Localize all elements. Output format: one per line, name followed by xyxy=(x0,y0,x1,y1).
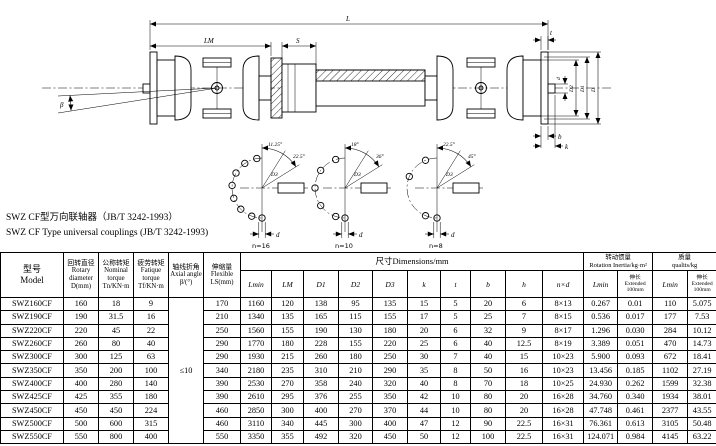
detail2-pitch-angle: 36° xyxy=(375,153,385,160)
col-header-model: 型号 Model xyxy=(1,253,64,298)
value-cell: 295 xyxy=(272,391,304,404)
table-row: SWZ220CF22045222501560155190130180206329… xyxy=(1,324,716,337)
col-header-mass-extended: 伸长 Extended 100mm xyxy=(688,271,716,298)
value-cell: 672 xyxy=(653,351,688,364)
value-cell: 10×23 xyxy=(543,364,584,377)
dim-slide-length: S xyxy=(282,37,316,68)
detail1-circle-label: D3 xyxy=(270,172,278,178)
value-cell: 460 xyxy=(204,417,241,430)
value-cell: 210 xyxy=(339,364,373,377)
detail1-pitch-angle: 22.5° xyxy=(293,153,306,160)
value-cell: 8×15 xyxy=(543,311,584,324)
value-cell: 1934 xyxy=(653,391,688,404)
value-cell: 370 xyxy=(373,404,408,417)
col-header-b: b xyxy=(471,271,506,298)
value-cell: 7 xyxy=(441,351,471,364)
value-cell: 350 xyxy=(373,391,408,404)
value-cell: 42 xyxy=(408,391,441,404)
value-cell: 160 xyxy=(64,298,99,311)
value-cell: 3350 xyxy=(241,430,272,443)
value-cell: 0.093 xyxy=(618,351,653,364)
value-cell: 20 xyxy=(471,298,506,311)
detail2-half-angle: 18° xyxy=(351,141,360,148)
value-cell: 358 xyxy=(304,377,339,390)
value-cell: 10×25 xyxy=(543,377,584,390)
value-cell: 6 xyxy=(441,337,471,350)
value-cell: 2180 xyxy=(241,364,272,377)
value-cell: 0.030 xyxy=(618,324,653,337)
value-cell: 800 xyxy=(99,430,134,443)
value-cell: 400 xyxy=(134,430,169,443)
value-cell: 450 xyxy=(64,404,99,417)
table-row: SWZ160CF160189≤1017011601201389513515520… xyxy=(1,298,716,311)
value-cell: 250 xyxy=(204,324,241,337)
value-cell: 0.185 xyxy=(618,364,653,377)
value-cell: 290 xyxy=(373,364,408,377)
value-cell: 80 xyxy=(99,337,134,350)
value-cell: 12 xyxy=(441,417,471,430)
value-cell: 5.900 xyxy=(584,351,618,364)
value-cell: 250 xyxy=(373,351,408,364)
value-cell: 25 xyxy=(471,311,506,324)
value-cell: 138 xyxy=(304,298,339,311)
value-cell: 155 xyxy=(272,324,304,337)
dim-label-LM: LM xyxy=(203,37,215,45)
value-cell: 8 xyxy=(441,364,471,377)
dim-flange-thickness: t xyxy=(533,29,556,50)
table-row: SWZ425CF42535518039026102953762553504210… xyxy=(1,391,716,404)
value-cell: 2530 xyxy=(241,377,272,390)
value-cell: 40 xyxy=(471,337,506,350)
value-cell: 1102 xyxy=(653,364,688,377)
bolt-pattern-detail-n16: 11.25° 22.5° D3 d n=16 xyxy=(229,141,308,250)
value-cell: 135 xyxy=(272,311,304,324)
detail3-pitch-angle: 45° xyxy=(468,153,477,160)
group-header-inertia: 转动惯量 Rotation Inertia/kg·m² xyxy=(584,253,653,271)
value-cell: 45 xyxy=(99,324,134,337)
value-cell: 40 xyxy=(134,337,169,350)
value-cell: 460 xyxy=(204,404,241,417)
value-cell: 25 xyxy=(408,337,441,350)
value-cell: 50 xyxy=(408,430,441,443)
model-cell: SWZ260CF xyxy=(1,337,64,350)
value-cell: 34.760 xyxy=(584,391,618,404)
value-cell: 120 xyxy=(272,298,304,311)
value-cell: 8×13 xyxy=(543,298,584,311)
value-cell: 125 xyxy=(99,351,134,364)
table-row: SWZ500CF50060031546031103404453004004712… xyxy=(1,417,716,430)
value-cell: 190 xyxy=(64,311,99,324)
value-cell: 9 xyxy=(506,324,543,337)
value-cell: 16×28 xyxy=(543,404,584,417)
value-cell: 270 xyxy=(272,377,304,390)
value-cell: 130 xyxy=(339,324,373,337)
value-cell: 12 xyxy=(441,430,471,443)
value-cell: 315 xyxy=(134,417,169,430)
value-cell: 290 xyxy=(204,351,241,364)
value-cell: 6 xyxy=(441,324,471,337)
value-cell: 15 xyxy=(408,298,441,311)
value-cell: 350 xyxy=(64,364,99,377)
value-cell: 400 xyxy=(64,377,99,390)
dim-label-t: t xyxy=(550,29,553,37)
value-cell: 235 xyxy=(272,364,304,377)
dim-label-k: k xyxy=(565,143,569,151)
table-row: SWZ400CF40028014039025302703582403204087… xyxy=(1,377,716,390)
value-cell: 0.267 xyxy=(584,298,618,311)
axial-angle-value: ≤10 xyxy=(169,298,204,444)
col-header-fatique-torque: 疲劳转矩 Fatique torque Tf/KN·m xyxy=(134,253,169,298)
detail3-half-angle: 22.5° xyxy=(443,141,456,148)
value-cell: 165 xyxy=(304,311,339,324)
model-cell: SWZ350CF xyxy=(1,364,64,377)
value-cell: 425 xyxy=(64,391,99,404)
value-cell: 4145 xyxy=(653,430,688,443)
value-cell: 340 xyxy=(204,364,241,377)
value-cell: 300 xyxy=(339,417,373,430)
value-cell: 260 xyxy=(64,337,99,350)
value-cell: 210 xyxy=(204,311,241,324)
value-cell: 80 xyxy=(471,391,506,404)
value-cell: 18.41 xyxy=(688,351,716,364)
bolt-pattern-detail-n8: 22.5° 45° D3 d n=8 xyxy=(406,141,483,250)
value-cell: 220 xyxy=(373,337,408,350)
value-cell: 95 xyxy=(339,298,373,311)
bolt-pattern-detail-n10: 18° 36° D3 d n=10 xyxy=(312,141,391,250)
model-cell: SWZ190CF xyxy=(1,311,64,324)
value-cell: 180 xyxy=(134,391,169,404)
page: L LM S t d xyxy=(0,0,716,446)
value-cell: 470 xyxy=(653,337,688,350)
value-cell: 32.38 xyxy=(688,377,716,390)
value-cell: 3110 xyxy=(241,417,272,430)
dim-label-D2: D2 xyxy=(569,85,575,93)
value-cell: 2377 xyxy=(653,404,688,417)
dim-label-b: b xyxy=(558,133,562,141)
model-cell: SWZ400CF xyxy=(1,377,64,390)
value-cell: 0.051 xyxy=(618,337,653,350)
value-cell: 22.5 xyxy=(506,417,543,430)
value-cell: 0.461 xyxy=(618,404,653,417)
value-cell: 70 xyxy=(471,377,506,390)
value-cell: 40 xyxy=(408,377,441,390)
col-header-axial-angle: 轴线折角 Axial angle β/(°) xyxy=(169,253,204,298)
value-cell: 22.5 xyxy=(506,430,543,443)
value-cell: 1340 xyxy=(241,311,272,324)
value-cell: 80 xyxy=(471,404,506,417)
value-cell: 284 xyxy=(653,324,688,337)
value-cell: 300 xyxy=(272,404,304,417)
value-cell: 320 xyxy=(373,377,408,390)
value-cell: 3.389 xyxy=(584,337,618,350)
model-cell: SWZ425CF xyxy=(1,391,64,404)
value-cell: 16×28 xyxy=(543,391,584,404)
value-cell: 10.12 xyxy=(688,324,716,337)
value-cell: 1160 xyxy=(241,298,272,311)
detail2-circle-label: D3 xyxy=(353,172,361,178)
detail3-hole-label: d xyxy=(451,231,455,239)
value-cell: 1599 xyxy=(653,377,688,390)
table-row: SWZ550CF55080040055033503554923204505012… xyxy=(1,430,716,443)
value-cell: 550 xyxy=(64,430,99,443)
value-cell: 8×19 xyxy=(543,337,584,350)
value-cell: 16×31 xyxy=(543,417,584,430)
value-cell: 0.262 xyxy=(618,377,653,390)
table-row: SWZ450CF45045022446028503004002703704410… xyxy=(1,404,716,417)
value-cell: 155 xyxy=(339,337,373,350)
value-cell: 390 xyxy=(204,391,241,404)
value-cell: 20 xyxy=(408,324,441,337)
value-cell: 5 xyxy=(441,298,471,311)
value-cell: 260 xyxy=(304,351,339,364)
value-cell: 600 xyxy=(99,417,134,430)
value-cell: 290 xyxy=(204,337,241,350)
value-cell: 90 xyxy=(471,417,506,430)
model-cell: SWZ160CF xyxy=(1,298,64,311)
value-cell: 224 xyxy=(134,404,169,417)
value-cell: 445 xyxy=(304,417,339,430)
value-cell: 220 xyxy=(64,324,99,337)
value-cell: 2610 xyxy=(241,391,272,404)
value-cell: 0.613 xyxy=(618,417,653,430)
value-cell: 270 xyxy=(339,404,373,417)
value-cell: 38.01 xyxy=(688,391,716,404)
value-cell: 16×31 xyxy=(543,430,584,443)
detail1-half-angle: 11.25° xyxy=(268,141,283,148)
value-cell: 31.5 xyxy=(99,311,134,324)
detail2-hole-label: d xyxy=(359,231,363,239)
value-cell: 1930 xyxy=(241,351,272,364)
col-header-d2: D2 xyxy=(339,271,373,298)
value-cell: 400 xyxy=(304,404,339,417)
model-cell: SWZ500CF xyxy=(1,417,64,430)
value-cell: 320 xyxy=(339,430,373,443)
table-row: SWZ350CF35020010034021802353102102903585… xyxy=(1,364,716,377)
value-cell: 12.5 xyxy=(506,337,543,350)
detail1-count-label: n=16 xyxy=(252,242,270,250)
dim-label-L: L xyxy=(345,15,350,23)
value-cell: 0.01 xyxy=(618,298,653,311)
value-cell: 215 xyxy=(272,351,304,364)
value-cell: 376 xyxy=(304,391,339,404)
value-cell: 355 xyxy=(99,391,134,404)
col-header-h: h xyxy=(506,271,543,298)
value-cell: 14.73 xyxy=(688,337,716,350)
value-cell: 177 xyxy=(653,311,688,324)
value-cell: 135 xyxy=(373,298,408,311)
value-cell: 1560 xyxy=(241,324,272,337)
value-cell: 32 xyxy=(471,324,506,337)
dim-label-D: D xyxy=(591,88,597,93)
table-row: SWZ190CF19031.51621013401351651151551752… xyxy=(1,311,716,324)
model-cell: SWZ550CF xyxy=(1,430,64,443)
value-cell: 0.536 xyxy=(584,311,618,324)
value-cell: 5 xyxy=(441,311,471,324)
value-cell: 63.22 xyxy=(688,430,716,443)
col-header-d3: D3 xyxy=(373,271,408,298)
group-header-mass: 质量 qualits/kg xyxy=(653,253,716,271)
dim-joint-length: LM xyxy=(150,37,271,56)
value-cell: 124.071 xyxy=(584,430,618,443)
dim-axial-angle: β xyxy=(58,88,217,113)
value-cell: 5.075 xyxy=(688,298,716,311)
value-cell: 18 xyxy=(506,377,543,390)
value-cell: 492 xyxy=(304,430,339,443)
detail3-count-label: n=8 xyxy=(429,242,443,250)
value-cell: 155 xyxy=(373,311,408,324)
value-cell: 400 xyxy=(373,417,408,430)
detail2-count-label: n=10 xyxy=(335,242,353,250)
dim-label-beta: β xyxy=(59,101,64,109)
value-cell: 180 xyxy=(339,351,373,364)
value-cell: 20 xyxy=(506,404,543,417)
value-cell: 340 xyxy=(272,417,304,430)
value-cell: 27.19 xyxy=(688,364,716,377)
value-cell: 0.017 xyxy=(618,311,653,324)
value-cell: 24.930 xyxy=(584,377,618,390)
col-header-d1: D1 xyxy=(304,271,339,298)
header-row-groups: 型号 Model 回转直径 Rotary diameter D(mm) 公称转矩… xyxy=(1,253,716,271)
value-cell: 17 xyxy=(408,311,441,324)
title-line-en: SWZ CF Type universal couplings (JB/T 32… xyxy=(6,226,208,241)
value-cell: 15 xyxy=(506,351,543,364)
col-header-nominal-torque: 公称转矩 Nominal torque Tn/KN·m xyxy=(99,253,134,298)
value-cell: 50.48 xyxy=(688,417,716,430)
value-cell: 30 xyxy=(408,351,441,364)
value-cell: 100 xyxy=(134,364,169,377)
value-cell: 35 xyxy=(408,364,441,377)
value-cell: 18 xyxy=(99,298,134,311)
specs-table: 型号 Model 回转直径 Rotary diameter D(mm) 公称转矩… xyxy=(0,252,716,444)
value-cell: 180 xyxy=(373,324,408,337)
dim-label-S: S xyxy=(296,37,300,45)
value-cell: 310 xyxy=(304,364,339,377)
value-cell: 450 xyxy=(373,430,408,443)
value-cell: 63 xyxy=(134,351,169,364)
value-cell: 115 xyxy=(339,311,373,324)
value-cell: 355 xyxy=(272,430,304,443)
value-cell: 2850 xyxy=(241,404,272,417)
group-header-dimensions: 尺寸Dimensions/mm xyxy=(241,253,584,271)
value-cell: 8×17 xyxy=(543,324,584,337)
value-cell: 43.55 xyxy=(688,404,716,417)
value-cell: 40 xyxy=(471,351,506,364)
dim-label-d: d xyxy=(556,77,562,80)
value-cell: 47.748 xyxy=(584,404,618,417)
col-header-lm: LM xyxy=(272,271,304,298)
value-cell: 170 xyxy=(204,298,241,311)
value-cell: 3105 xyxy=(653,417,688,430)
col-header-rotary-diameter: 回转直径 Rotary diameter D(mm) xyxy=(64,253,99,298)
value-cell: 550 xyxy=(204,430,241,443)
col-header-inertia-lmin: Lmin xyxy=(584,271,618,298)
col-header-flexible: 伸缩量 Flexible LS(mm) xyxy=(204,253,241,298)
value-cell: 13.456 xyxy=(584,364,618,377)
col-header-t: t xyxy=(441,271,471,298)
value-cell: 16 xyxy=(506,364,543,377)
value-cell: 22 xyxy=(134,324,169,337)
value-cell: 180 xyxy=(272,337,304,350)
value-cell: 9 xyxy=(134,298,169,311)
title-block: SWZ CF型万向联轴器（JB/T 3242-1993） SWZ CF Type… xyxy=(6,211,208,241)
value-cell: 6 xyxy=(506,298,543,311)
value-cell: 76.361 xyxy=(584,417,618,430)
value-cell: 1.296 xyxy=(584,324,618,337)
value-cell: 20 xyxy=(506,391,543,404)
value-cell: 16 xyxy=(134,311,169,324)
table-row: SWZ260CF26080402901770180228155220256401… xyxy=(1,337,716,350)
col-header-lmin: Lmin xyxy=(241,271,272,298)
table-row: SWZ300CF30012563290193021526018025030740… xyxy=(1,351,716,364)
value-cell: 7.53 xyxy=(688,311,716,324)
value-cell: 240 xyxy=(339,377,373,390)
value-cell: 10×23 xyxy=(543,351,584,364)
value-cell: 110 xyxy=(653,298,688,311)
dim-label-D1: D1 xyxy=(580,85,586,93)
value-cell: 450 xyxy=(99,404,134,417)
col-header-k: k xyxy=(408,271,441,298)
value-cell: 100 xyxy=(471,430,506,443)
value-cell: 0.340 xyxy=(618,391,653,404)
col-header-nxd: n×d xyxy=(543,271,584,298)
value-cell: 7 xyxy=(506,311,543,324)
value-cell: 280 xyxy=(99,377,134,390)
value-cell: 10 xyxy=(441,404,471,417)
value-cell: 8 xyxy=(441,377,471,390)
value-cell: 228 xyxy=(304,337,339,350)
value-cell: 44 xyxy=(408,404,441,417)
value-cell: 300 xyxy=(64,351,99,364)
value-cell: 47 xyxy=(408,417,441,430)
value-cell: 390 xyxy=(204,377,241,390)
model-cell: SWZ300CF xyxy=(1,351,64,364)
model-cell: SWZ450CF xyxy=(1,404,64,417)
col-header-mass-lmin: Lmin xyxy=(653,271,688,298)
title-line-cn: SWZ CF型万向联轴器（JB/T 3242-1993） xyxy=(6,211,208,226)
col-header-inertia-extended: 伸长 Extended 100mm xyxy=(618,271,653,298)
value-cell: 200 xyxy=(99,364,134,377)
table-body: SWZ160CF160189≤1017011601201389513515520… xyxy=(1,298,716,444)
detail1-hole-label: d xyxy=(276,231,280,239)
model-cell: SWZ220CF xyxy=(1,324,64,337)
value-cell: 140 xyxy=(134,377,169,390)
value-cell: 190 xyxy=(304,324,339,337)
value-cell: 10 xyxy=(441,391,471,404)
value-cell: 0.984 xyxy=(618,430,653,443)
value-cell: 1770 xyxy=(241,337,272,350)
value-cell: 255 xyxy=(339,391,373,404)
value-cell: 500 xyxy=(64,417,99,430)
value-cell: 50 xyxy=(471,364,506,377)
detail3-circle-label: D3 xyxy=(445,172,453,178)
